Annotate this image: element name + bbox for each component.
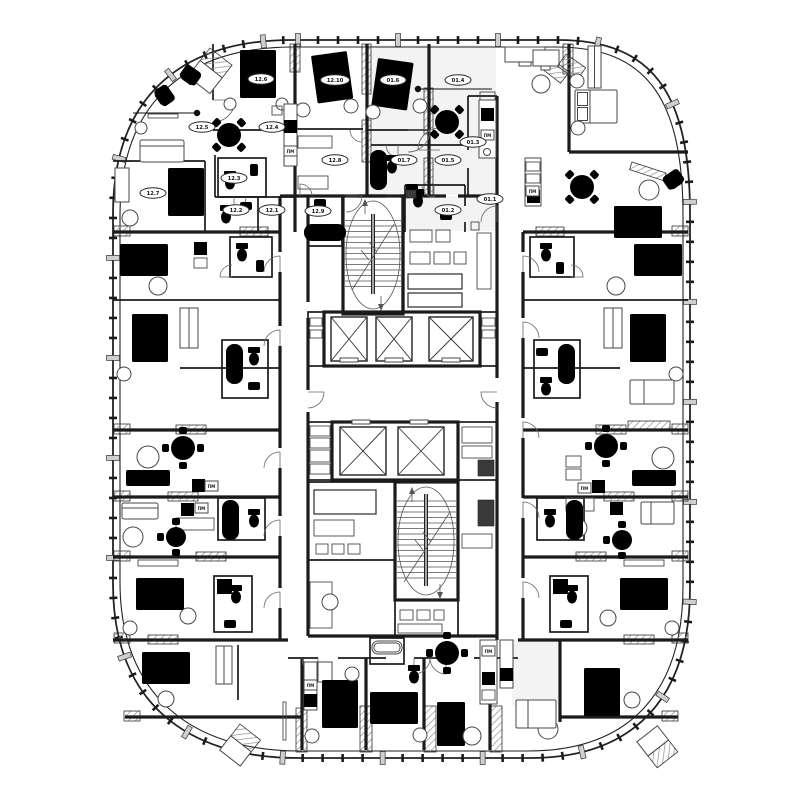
svg-text:ПМ: ПМ bbox=[198, 506, 206, 511]
facade-panel bbox=[107, 355, 120, 360]
bed bbox=[370, 692, 418, 724]
sink bbox=[224, 620, 236, 628]
facade-mullion bbox=[501, 754, 504, 762]
bathtub bbox=[370, 150, 387, 190]
svg-text:ПМ: ПМ bbox=[484, 133, 492, 138]
svg-text:ПМ: ПМ bbox=[581, 486, 589, 491]
bathtub bbox=[304, 224, 346, 241]
svg-text:12.7: 12.7 bbox=[147, 191, 160, 197]
facade-mullion bbox=[686, 321, 694, 324]
facade-panel bbox=[396, 34, 401, 47]
facade-mullion bbox=[109, 577, 117, 580]
bathtub bbox=[566, 500, 583, 540]
facade-mullion bbox=[109, 297, 117, 300]
svg-text:ПМ: ПМ bbox=[208, 484, 216, 489]
unit-label-12.1: 12.1 bbox=[259, 205, 285, 215]
floor-plan-page: ПМ ПМ ПМ ПМ ПМ ПМ ПМ ПМ 12.5 12.6 12.10 … bbox=[0, 0, 800, 790]
facade-mullion bbox=[686, 281, 694, 284]
sink bbox=[248, 382, 260, 390]
washing-machine: ПМ bbox=[205, 481, 218, 491]
facade-panel bbox=[480, 752, 485, 765]
facade-mullion bbox=[109, 477, 117, 480]
facade-mullion bbox=[686, 221, 694, 224]
bed bbox=[120, 244, 168, 276]
facade-mullion bbox=[321, 754, 324, 762]
sofa bbox=[122, 503, 158, 519]
facade-mullion bbox=[686, 241, 694, 244]
bathtub bbox=[226, 344, 243, 384]
facade-mullion bbox=[109, 517, 117, 520]
sofa bbox=[140, 140, 184, 162]
bed bbox=[630, 380, 674, 404]
sofa bbox=[126, 470, 170, 486]
bed bbox=[516, 700, 556, 728]
svg-text:12.9: 12.9 bbox=[312, 209, 325, 215]
sink bbox=[536, 348, 548, 356]
wardrobe bbox=[115, 168, 129, 202]
facade-mullion bbox=[521, 754, 524, 762]
facade-mullion bbox=[109, 596, 117, 599]
svg-text:12.6: 12.6 bbox=[255, 77, 268, 83]
svg-text:ПМ: ПМ bbox=[287, 149, 295, 154]
unit-label-12.3: 12.3 bbox=[221, 173, 247, 183]
facade-mullion bbox=[109, 217, 117, 220]
kitchen-hob bbox=[304, 694, 317, 707]
svg-text:12.10: 12.10 bbox=[327, 78, 344, 84]
kitchen-counter bbox=[284, 104, 297, 166]
svg-text:12.3: 12.3 bbox=[228, 176, 241, 182]
elevator-bank-upper bbox=[308, 312, 497, 366]
facade-mullion bbox=[109, 377, 117, 380]
bed bbox=[641, 502, 674, 524]
bed bbox=[614, 206, 662, 238]
sofa bbox=[632, 470, 676, 486]
facade-mullion bbox=[109, 337, 117, 340]
facade-panel bbox=[107, 255, 120, 260]
facade-mullion bbox=[109, 437, 117, 440]
facade-mullion bbox=[537, 36, 540, 44]
wardrobe bbox=[588, 46, 601, 88]
bathtub bbox=[372, 641, 402, 654]
svg-text:01.7: 01.7 bbox=[398, 158, 411, 164]
facade-mullion bbox=[109, 277, 117, 280]
bed bbox=[584, 668, 620, 716]
facade-mullion bbox=[401, 754, 404, 762]
svg-text:ПМ: ПМ bbox=[529, 189, 537, 194]
wardrobe bbox=[180, 308, 198, 348]
facade-mullion bbox=[686, 421, 694, 424]
facade-mullion bbox=[686, 341, 694, 344]
kitchen-hob bbox=[181, 503, 194, 516]
facade-mullion bbox=[541, 754, 544, 762]
wardrobe bbox=[318, 662, 332, 682]
facade-mullion bbox=[686, 441, 694, 444]
facade-mullion bbox=[457, 36, 460, 44]
facade-mullion bbox=[557, 36, 560, 44]
svg-text:12.1: 12.1 bbox=[266, 208, 279, 214]
bed bbox=[132, 314, 168, 362]
facade-panel bbox=[683, 199, 696, 204]
sink bbox=[560, 620, 572, 628]
kitchen-hob bbox=[481, 108, 494, 121]
facade-mullion bbox=[685, 180, 693, 183]
washing-machine: ПМ bbox=[482, 646, 495, 656]
facade-mullion bbox=[517, 36, 520, 44]
unit-label-12.9: 12.9 bbox=[305, 206, 331, 216]
unit-label-01.3: 01.3 bbox=[460, 137, 486, 147]
facade-mullion bbox=[109, 317, 117, 320]
facade-mullion bbox=[109, 397, 117, 400]
sink bbox=[256, 260, 264, 272]
wardrobe bbox=[604, 308, 622, 348]
kitchen-hob bbox=[482, 672, 495, 685]
unit-label-12.10: 12.10 bbox=[321, 75, 350, 85]
shower bbox=[553, 579, 568, 594]
svg-text:01.1: 01.1 bbox=[484, 197, 497, 203]
svg-text:12.2: 12.2 bbox=[230, 208, 243, 214]
svg-text:01.2: 01.2 bbox=[442, 208, 455, 214]
facade-mullion bbox=[109, 537, 117, 540]
bed bbox=[620, 578, 668, 610]
facade-mullion bbox=[341, 754, 344, 762]
shower bbox=[217, 579, 232, 594]
unit-label-12.7: 12.7 bbox=[140, 188, 166, 198]
unit-label-12.6: 12.6 bbox=[248, 74, 274, 84]
facade-mullion bbox=[301, 754, 304, 762]
unit-label-12.2: 12.2 bbox=[223, 205, 249, 215]
bed bbox=[630, 314, 666, 362]
svg-text:01.3: 01.3 bbox=[467, 140, 480, 146]
facade-mullion bbox=[282, 36, 285, 44]
facade-panel bbox=[683, 599, 696, 605]
facade-mullion bbox=[377, 36, 380, 44]
facade-mullion bbox=[686, 361, 694, 364]
svg-text:01.4: 01.4 bbox=[452, 78, 465, 84]
kitchen-hob bbox=[194, 242, 207, 255]
svg-text:12.8: 12.8 bbox=[329, 158, 342, 164]
svg-text:12.5: 12.5 bbox=[196, 125, 209, 131]
unit-label-01.1: 01.1 bbox=[477, 194, 503, 204]
facade-mullion bbox=[421, 754, 424, 762]
bed bbox=[322, 680, 358, 728]
unit-label-12.8: 12.8 bbox=[322, 155, 348, 165]
facade-mullion bbox=[109, 417, 117, 420]
bed bbox=[168, 168, 204, 216]
facade-panel bbox=[260, 35, 266, 48]
facade-panel bbox=[107, 455, 120, 460]
bed bbox=[142, 652, 190, 684]
facade-mullion bbox=[337, 36, 340, 44]
facade-mullion bbox=[461, 754, 464, 762]
svg-text:ПМ: ПМ bbox=[307, 683, 315, 688]
svg-text:01.5: 01.5 bbox=[442, 158, 455, 164]
bed bbox=[437, 702, 465, 746]
facade-mullion bbox=[437, 36, 440, 44]
washing-machine: ПМ bbox=[304, 680, 317, 690]
kitchen-hob bbox=[610, 502, 623, 515]
washing-machine: ПМ bbox=[284, 146, 297, 156]
unit-label-01.6: 01.6 bbox=[380, 75, 406, 85]
kitchen-hob bbox=[284, 120, 297, 133]
sink bbox=[250, 164, 258, 176]
facade-mullion bbox=[361, 754, 364, 762]
bathtub bbox=[222, 500, 239, 540]
facade-mullion bbox=[686, 541, 694, 544]
facade-mullion bbox=[441, 754, 444, 762]
unit-label-01.4: 01.4 bbox=[445, 75, 471, 85]
facade-mullion bbox=[686, 461, 694, 464]
facade-panel bbox=[684, 399, 697, 404]
bed bbox=[136, 578, 184, 610]
wardrobe bbox=[216, 646, 232, 684]
facade-mullion bbox=[686, 521, 694, 524]
facade-mullion bbox=[317, 36, 320, 44]
facade-mullion bbox=[686, 581, 694, 584]
unit-label-01.5: 01.5 bbox=[435, 155, 461, 165]
svg-text:01.6: 01.6 bbox=[387, 78, 400, 84]
sink bbox=[556, 262, 564, 274]
washing-machine: ПМ bbox=[578, 483, 591, 493]
kitchen-hob bbox=[192, 479, 205, 492]
facade-mullion bbox=[109, 237, 117, 240]
kitchen-hob bbox=[500, 668, 513, 681]
unit-label-01.7: 01.7 bbox=[391, 155, 417, 165]
svg-text:ПМ: ПМ bbox=[485, 649, 493, 654]
washing-machine: ПМ bbox=[526, 186, 539, 196]
unit-label-12.4: 12.4 bbox=[259, 122, 285, 132]
svg-text:12.4: 12.4 bbox=[266, 125, 279, 131]
kitchen-hob bbox=[592, 480, 605, 493]
facade-mullion bbox=[417, 36, 420, 44]
facade-mullion bbox=[477, 36, 480, 44]
floor-plan-canvas: ПМ ПМ ПМ ПМ ПМ ПМ ПМ ПМ 12.5 12.6 12.10 … bbox=[0, 0, 800, 790]
washing-machine: ПМ bbox=[195, 503, 208, 513]
bed bbox=[634, 244, 682, 276]
facade-mullion bbox=[686, 481, 694, 484]
bathtub bbox=[558, 344, 575, 384]
facade-mullion bbox=[686, 381, 694, 384]
facade-panel bbox=[496, 34, 501, 47]
facade-panel bbox=[380, 752, 385, 765]
facade-mullion bbox=[357, 36, 360, 44]
unit-label-12.5: 12.5 bbox=[189, 122, 215, 132]
facade-mullion bbox=[686, 261, 694, 264]
bed bbox=[575, 90, 617, 123]
unit-label-01.2: 01.2 bbox=[435, 205, 461, 215]
facade-panel bbox=[280, 751, 286, 764]
